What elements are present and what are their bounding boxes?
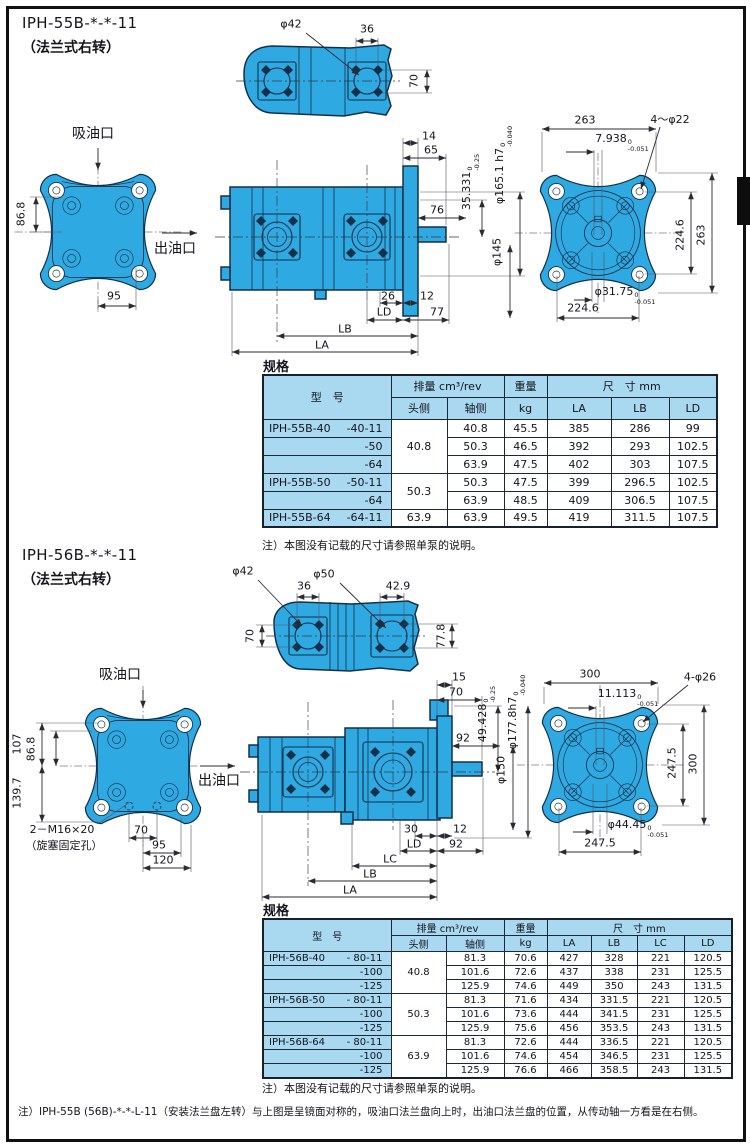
data-cell: 306.5 <box>611 491 669 509</box>
model-cell: IPH-56B-64- 80-11 <box>263 1036 391 1050</box>
table-row: -125125.975.6456353.5243131.5 <box>263 1022 732 1036</box>
col-LD: LD <box>684 936 732 952</box>
head-side-cell: 50.3 <box>391 473 447 509</box>
table-row: -100101.673.6444341.5231125.5 <box>263 1008 732 1022</box>
model-cell-inner: -100 <box>264 1009 391 1020</box>
col-weight-unit: kg <box>504 397 547 419</box>
dim-77: 77 <box>430 306 444 319</box>
data-cell: 399 <box>547 473 611 491</box>
model-base <box>264 494 269 507</box>
data-cell: 107.5 <box>669 455 717 473</box>
data-cell: 243 <box>637 980 684 994</box>
dim-95: 95 <box>107 290 121 303</box>
data-cell: 81.3 <box>446 1036 504 1050</box>
data-cell: 50.3 <box>447 473 504 491</box>
model-base <box>264 1023 269 1034</box>
model-cell-inner: IPH-55B-50-50-11 <box>264 476 391 489</box>
table-row: IPH-55B-64-64-1163.963.949.5419311.5107.… <box>263 509 717 527</box>
data-cell: 434 <box>547 994 591 1008</box>
section2-subtitle: （法兰式右转） <box>22 569 120 589</box>
dim-263-top: 263 <box>575 114 596 127</box>
outlet-port-label: 出油口 <box>198 770 240 790</box>
col-shaft-side: 轴侧 <box>446 936 504 952</box>
spec-heading-1: 规格 <box>263 356 289 375</box>
col-model: 型 号 <box>263 375 391 419</box>
data-cell: 63.9 <box>447 509 504 527</box>
data-cell: 131.5 <box>684 1064 732 1078</box>
data-cell: 81.3 <box>446 994 504 1008</box>
model-cell-inner: -125 <box>264 981 391 992</box>
data-cell: 131.5 <box>684 980 732 994</box>
data-cell: 427 <box>547 952 591 966</box>
model-variant: -64-11 <box>347 511 391 524</box>
dim-phi42: φ42 <box>232 565 253 578</box>
dim-phi145: φ145 <box>491 238 504 266</box>
tolerance: 0-0.25 <box>483 686 496 703</box>
model-cell: -100 <box>263 1050 391 1064</box>
dim-LD: LD <box>377 306 392 319</box>
model-cell-inner: IPH-56B-64- 80-11 <box>264 1037 391 1048</box>
data-cell: 449 <box>547 980 591 994</box>
col-weight-unit: kg <box>504 936 547 952</box>
model-cell-inner: -50 <box>264 440 391 453</box>
data-cell: 47.5 <box>504 455 547 473</box>
data-cell: 107.5 <box>669 509 717 527</box>
data-cell: 125.9 <box>446 980 504 994</box>
data-cell: 74.6 <box>504 980 547 994</box>
dim-15: 15 <box>452 671 466 684</box>
model-cell: -125 <box>263 980 391 994</box>
model-base: IPH-55B-40 <box>264 422 331 435</box>
model-base: IPH-56B-50 <box>264 995 325 1006</box>
data-cell: 125.9 <box>446 1064 504 1078</box>
dim-95: 95 <box>152 839 166 852</box>
dim-phi150: φ150 <box>495 756 508 784</box>
dim-phi44-45: φ44.450-0.051 <box>608 818 669 838</box>
head-side-cell: 40.8 <box>391 952 446 994</box>
data-cell: 102.5 <box>669 437 717 455</box>
dim-92-lower: 92 <box>449 838 463 851</box>
data-cell: 286 <box>611 419 669 437</box>
dim-65: 65 <box>424 144 438 157</box>
dim-14: 14 <box>422 130 436 143</box>
data-cell: 296.5 <box>611 473 669 491</box>
data-cell: 101.6 <box>446 1050 504 1064</box>
section1-subtitle: （法兰式右转） <box>22 37 120 57</box>
data-cell: 120.5 <box>684 994 732 1008</box>
tolerance: 0-0.051 <box>647 825 668 838</box>
dim-36: 36 <box>297 580 311 593</box>
data-cell: 107.5 <box>669 491 717 509</box>
dim-4-phi26: 4-φ26 <box>684 671 716 684</box>
tolerance: 0-0.051 <box>628 139 649 152</box>
tolerance: 0-0.040 <box>513 675 526 696</box>
data-cell: 63.9 <box>447 491 504 509</box>
dim-107: 107 <box>11 734 24 755</box>
col-dimensions: 尺 寸 mm <box>547 919 732 936</box>
data-cell: 47.5 <box>504 473 547 491</box>
data-cell: 63.9 <box>447 455 504 473</box>
dim-36: 36 <box>360 23 374 36</box>
model-cell: -100 <box>263 1008 391 1022</box>
dim-86-8: 86.8 <box>25 737 38 762</box>
table-row: IPH-55B-50-50-1150.350.347.5399296.5102.… <box>263 473 717 491</box>
data-cell: 336.5 <box>591 1036 637 1050</box>
data-cell: 125.5 <box>684 1050 732 1064</box>
model-base <box>264 458 269 471</box>
data-cell: 402 <box>547 455 611 473</box>
model-cell-inner: IPH-56B-40- 80-11 <box>264 953 391 964</box>
dim-phi31-75: φ31.750-0.051 <box>595 285 656 305</box>
page-edge-tab <box>737 177 750 225</box>
model-cell: -125 <box>263 1022 391 1036</box>
data-cell: 466 <box>547 1064 591 1078</box>
data-cell: 46.5 <box>504 437 547 455</box>
catalog-page: IPH-55B-*-*-11 （法兰式右转） 吸油口 出油口 φ42 36 70… <box>0 0 750 1146</box>
table-row: -5050.346.5392293102.5 <box>263 437 717 455</box>
table-row: -125125.976.6466358.5243131.5 <box>263 1064 732 1078</box>
model-cell-inner: -125 <box>264 1023 391 1034</box>
model-base: IPH-56B-40 <box>264 953 325 964</box>
data-cell: 338 <box>591 966 637 980</box>
outlet-port-label: 出油口 <box>154 238 196 258</box>
section1-title: IPH-55B-*-*-11 <box>22 14 137 32</box>
dim-11-113: 11.1130-0.051 <box>598 687 658 707</box>
dim-35-331: 35.3310-0.25 <box>460 154 480 210</box>
col-displacement: 排量 cm³/rev <box>391 919 504 936</box>
model-variant: -64 <box>365 458 391 471</box>
plug-hole-sublabel: （旋塞固定孔） <box>26 837 103 853</box>
data-cell: 50.3 <box>447 437 504 455</box>
dim-LD: LD <box>407 838 422 851</box>
data-cell: 101.6 <box>446 966 504 980</box>
model-variant: - 80-11 <box>347 1037 391 1048</box>
col-LA: LA <box>547 397 611 419</box>
model-cell-inner: IPH-55B-40-40-11 <box>264 422 391 435</box>
table-row: IPH-56B-50- 80-1150.381.371.6434331.5221… <box>263 994 732 1008</box>
dim-92-upper: 92 <box>456 732 470 745</box>
model-cell: -64 <box>263 455 391 473</box>
data-cell: 444 <box>547 1008 591 1022</box>
dim-26: 26 <box>381 290 395 303</box>
model-base <box>264 440 269 453</box>
tolerance: 0-0.051 <box>634 292 655 305</box>
data-cell: 120.5 <box>684 952 732 966</box>
dim-phi42: φ42 <box>280 18 301 31</box>
model-cell: IPH-55B-64-64-11 <box>263 509 391 527</box>
tolerance: 0-0.25 <box>467 154 480 171</box>
head-side-cell: 40.8 <box>391 419 447 473</box>
model-cell-inner: -125 <box>264 1065 391 1076</box>
col-weight: 重量 <box>504 375 547 397</box>
spec-heading-2: 规格 <box>263 900 289 919</box>
data-cell: 385 <box>547 419 611 437</box>
data-cell: 102.5 <box>669 473 717 491</box>
data-cell: 125.9 <box>446 1022 504 1036</box>
data-cell: 419 <box>547 509 611 527</box>
data-cell: 243 <box>637 1064 684 1078</box>
model-variant: -64 <box>365 494 391 507</box>
model-variant: -50 <box>365 440 391 453</box>
col-dimensions: 尺 寸 mm <box>547 375 717 397</box>
data-cell: 221 <box>637 952 684 966</box>
data-cell: 331.5 <box>591 994 637 1008</box>
data-cell: 221 <box>637 994 684 1008</box>
model-base <box>264 1009 269 1020</box>
data-cell: 40.8 <box>447 419 504 437</box>
model-cell: -64 <box>263 491 391 509</box>
data-cell: 328 <box>591 952 637 966</box>
model-variant: -100 <box>360 967 391 978</box>
page-bottom-note: 注）IPH-55B (56B)-*-*-L-11（安装法兰盘左转）与上图是呈镜面… <box>18 1104 734 1119</box>
dim-LA: LA <box>315 339 329 352</box>
dim-76: 76 <box>430 204 444 217</box>
model-variant: - 80-11 <box>347 953 391 964</box>
data-cell: 48.5 <box>504 491 547 509</box>
dim-30: 30 <box>404 823 418 836</box>
dim-phi165-1: φ165.1 h70-0.040 <box>493 126 513 204</box>
data-cell: 350 <box>591 980 637 994</box>
col-LB: LB <box>611 397 669 419</box>
dim-phi50: φ50 <box>313 568 334 581</box>
data-cell: 346.5 <box>591 1050 637 1064</box>
model-cell: -50 <box>263 437 391 455</box>
dim-LB: LB <box>338 323 352 336</box>
model-base <box>264 967 269 978</box>
tolerance: 0-0.040 <box>500 126 513 147</box>
table-row: IPH-56B-64- 80-1163.981.372.6444336.5221… <box>263 1036 732 1050</box>
model-cell: -100 <box>263 966 391 980</box>
data-cell: 392 <box>547 437 611 455</box>
data-cell: 101.6 <box>446 1008 504 1022</box>
model-cell-inner: IPH-56B-50- 80-11 <box>264 995 391 1006</box>
tolerance: 0-0.051 <box>637 694 658 707</box>
data-cell: 293 <box>611 437 669 455</box>
table-row: -100101.674.6454346.5231125.5 <box>263 1050 732 1064</box>
data-cell: 72.6 <box>504 966 547 980</box>
col-head-side: 头侧 <box>391 936 446 952</box>
model-variant: - 80-11 <box>347 995 391 1006</box>
dim-300-v: 300 <box>687 754 700 775</box>
suction-port-label: 吸油口 <box>99 664 141 684</box>
dim-LA: LA <box>343 884 357 897</box>
table-row: -125125.974.6449350243131.5 <box>263 980 732 994</box>
model-variant: -100 <box>360 1051 391 1062</box>
table-row: -100101.672.6437338231125.5 <box>263 966 732 980</box>
model-cell-inner: -64 <box>264 494 391 507</box>
data-cell: 243 <box>637 1022 684 1036</box>
model-cell: IPH-55B-50-50-11 <box>263 473 391 491</box>
data-cell: 73.6 <box>504 1008 547 1022</box>
head-side-cell: 63.9 <box>391 1036 446 1078</box>
data-cell: 75.6 <box>504 1022 547 1036</box>
col-weight: 重量 <box>504 919 547 936</box>
data-cell: 341.5 <box>591 1008 637 1022</box>
data-cell: 71.6 <box>504 994 547 1008</box>
model-base <box>264 981 269 992</box>
model-base: IPH-55B-64 <box>264 511 331 524</box>
spec-table-2: 型 号排量 cm³/rev重量尺 寸 mm头侧轴侧kgLALBLCLDIPH-5… <box>262 918 733 1079</box>
model-variant: -125 <box>360 1023 391 1034</box>
data-cell: 311.5 <box>611 509 669 527</box>
model-base <box>264 1051 269 1062</box>
dim-70: 70 <box>449 686 463 699</box>
data-cell: 76.6 <box>504 1064 547 1078</box>
spec-table-1: 型 号排量 cm³/rev重量尺 寸 mm头侧轴侧kgLALBLDIPH-55B… <box>262 374 718 528</box>
data-cell: 409 <box>547 491 611 509</box>
dim-70: 70 <box>244 629 257 643</box>
data-cell: 303 <box>611 455 669 473</box>
plug-hole-label: 2－M16×20 <box>30 821 95 837</box>
dim-263-v: 263 <box>695 225 708 246</box>
data-cell: 358.5 <box>591 1064 637 1078</box>
col-head-side: 头侧 <box>391 397 447 419</box>
data-cell: 454 <box>547 1050 591 1064</box>
model-cell: IPH-55B-40-40-11 <box>263 419 391 437</box>
model-variant: -50-11 <box>347 476 391 489</box>
dim-86-8: 86.8 <box>15 202 28 227</box>
col-model: 型 号 <box>263 919 391 952</box>
model-variant: -40-11 <box>347 422 391 435</box>
model-cell-inner: -100 <box>264 1051 391 1062</box>
dim-phi177-8: φ177.8h70-0.040 <box>506 675 526 750</box>
data-cell: 120.5 <box>684 1036 732 1050</box>
model-cell: IPH-56B-40- 80-11 <box>263 952 391 966</box>
model-cell-inner: -100 <box>264 967 391 978</box>
data-cell: 45.5 <box>504 419 547 437</box>
col-LC: LC <box>637 936 684 952</box>
model-cell: IPH-56B-50- 80-11 <box>263 994 391 1008</box>
table-row: -6463.947.5402303107.5 <box>263 455 717 473</box>
dim-42-9: 42.9 <box>386 580 411 593</box>
model-cell: -125 <box>263 1064 391 1078</box>
table-row: IPH-56B-40- 80-1140.881.370.642732822112… <box>263 952 732 966</box>
data-cell: 125.5 <box>684 1008 732 1022</box>
dim-49-428: 49.4280-0.25 <box>476 686 496 742</box>
model-base <box>264 1065 269 1076</box>
data-cell: 125.5 <box>684 966 732 980</box>
dim-139-7: 139.7 <box>11 777 24 809</box>
suction-port-label: 吸油口 <box>72 123 114 143</box>
col-LB: LB <box>591 936 637 952</box>
dim-120: 120 <box>153 854 174 867</box>
data-cell: 99 <box>669 419 717 437</box>
model-variant: -125 <box>360 981 391 992</box>
dim-12: 12 <box>453 823 467 836</box>
table1-note: 注）本图没有记载的尺寸请参照单泵的说明。 <box>262 537 482 553</box>
data-cell: 70.6 <box>504 952 547 966</box>
col-LD: LD <box>669 397 717 419</box>
data-cell: 131.5 <box>684 1022 732 1036</box>
data-cell: 81.3 <box>446 952 504 966</box>
dim-4-phi22: 4～φ22 <box>650 111 689 127</box>
data-cell: 444 <box>547 1036 591 1050</box>
dim-247-5-v: 247.5 <box>666 747 679 779</box>
model-variant: -125 <box>360 1065 391 1076</box>
dim-12: 12 <box>420 290 434 303</box>
data-cell: 231 <box>637 1008 684 1022</box>
table-row: -6463.948.5409306.5107.5 <box>263 491 717 509</box>
dim-LB: LB <box>363 868 377 881</box>
dim-300-top: 300 <box>580 668 601 681</box>
dim-77-8: 77.8 <box>435 624 448 649</box>
dim-224-6-v: 224.6 <box>674 219 687 251</box>
model-cell-inner: IPH-55B-64-64-11 <box>264 511 391 524</box>
data-cell: 231 <box>637 1050 684 1064</box>
dim-224-6-h: 224.6 <box>567 302 599 315</box>
data-cell: 353.5 <box>591 1022 637 1036</box>
model-base: IPH-55B-50 <box>264 476 331 489</box>
table-row: IPH-55B-40-40-1140.840.845.538528699 <box>263 419 717 437</box>
model-variant: -100 <box>360 1009 391 1020</box>
data-cell: 437 <box>547 966 591 980</box>
dim-LC: LC <box>383 853 397 866</box>
data-cell: 49.5 <box>504 509 547 527</box>
model-cell-inner: -64 <box>264 458 391 471</box>
data-cell: 74.6 <box>504 1050 547 1064</box>
data-cell: 456 <box>547 1022 591 1036</box>
dim-70: 70 <box>408 74 421 88</box>
data-cell: 72.6 <box>504 1036 547 1050</box>
col-displacement: 排量 cm³/rev <box>391 375 504 397</box>
head-side-cell: 63.9 <box>391 509 447 527</box>
head-side-cell: 50.3 <box>391 994 446 1036</box>
col-shaft-side: 轴侧 <box>447 397 504 419</box>
table2-note: 注）本图没有记载的尺寸请参照单泵的说明。 <box>262 1080 482 1096</box>
section2-title: IPH-56B-*-*-11 <box>22 546 137 564</box>
col-LA: LA <box>547 936 591 952</box>
dim-70: 70 <box>134 824 148 837</box>
model-base: IPH-56B-64 <box>264 1037 325 1048</box>
data-cell: 231 <box>637 966 684 980</box>
dim-7-938: 7.9380-0.051 <box>595 132 648 152</box>
data-cell: 221 <box>637 1036 684 1050</box>
dim-247-5-h: 247.5 <box>584 837 616 850</box>
